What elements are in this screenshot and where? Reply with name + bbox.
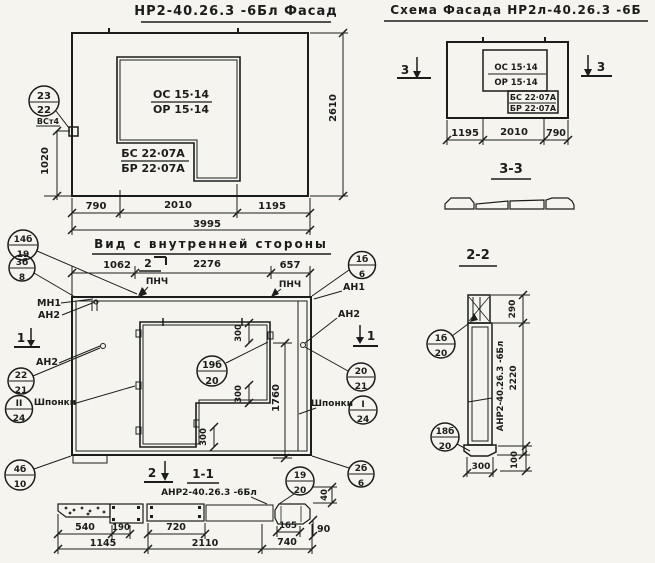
hatch-dots [65, 507, 105, 515]
svg-text:2б: 2б [355, 463, 368, 474]
section-1-marker-left: 1 [14, 328, 40, 347]
an1-label: АН1 [343, 282, 365, 293]
svg-text:20: 20 [205, 376, 219, 387]
section-1-1-panel-mark: АНР2-40.26.3 -6Бл [161, 488, 257, 498]
section-2-2: 2-2 АНР2-40.26.3 -6Бл 290 2220 300 100 1… [427, 248, 532, 477]
schema-opening-mark-top: ОС 15·14 [494, 63, 537, 73]
blueprint-sheet: НР2-40.26.3 -6Бл Фасад ОС 15·14 ОР 15·14… [0, 0, 655, 563]
dim-100: 100 [510, 451, 520, 469]
dim-1145: 1145 [90, 538, 116, 549]
svg-text:6: 6 [359, 270, 365, 280]
mn1-label: МН1 [37, 298, 61, 309]
section-2-marker-bottom: 2 [144, 461, 173, 482]
section-3-3-title: 3-3 [499, 162, 523, 177]
facade-view: НР2-40.26.3 -6Бл Фасад ОС 15·14 ОР 15·14… [29, 4, 348, 235]
facade-block-mark-top: БС 22·07А [121, 147, 185, 160]
facade-block-mark-bottom: БР 22·07А [121, 162, 185, 175]
facade-title: НР2-40.26.3 -6Бл Фасад [134, 4, 338, 19]
dim-657: 657 [280, 260, 301, 271]
schema-title: Схема Фасада НР2л-40.26.3 -6Б [390, 3, 641, 17]
an2-label-right: АН2 [338, 309, 360, 320]
dim-300-a: 300 [234, 324, 244, 342]
dim-290: 290 [508, 300, 518, 319]
section-3-marker-right: 3 [581, 55, 612, 77]
steel-grade-note: ВСт4 [37, 117, 60, 126]
svg-text:3: 3 [401, 63, 409, 77]
dim-720: 720 [166, 522, 186, 533]
facade-opening-mark-top: ОС 15·14 [153, 88, 209, 101]
section-3-3: 3-3 [445, 162, 574, 209]
section-2-2-panel-mark: АНР2-40.26.3 -6Бл [496, 341, 506, 432]
an2-label-left-mid: АН2 [36, 357, 58, 368]
dim-2010-schema: 2010 [500, 127, 528, 138]
section-2-2-title: 2-2 [466, 248, 490, 263]
dim-1020: 1020 [40, 147, 51, 175]
svg-text:14б: 14б [14, 234, 33, 245]
svg-text:3: 3 [597, 60, 605, 74]
dim-2276: 2276 [193, 259, 221, 270]
inner-view-title: Вид с внутренней стороны [94, 237, 328, 251]
dim-90: 90 [317, 524, 331, 535]
svg-text:10: 10 [14, 480, 27, 490]
svg-text:24: 24 [357, 415, 370, 425]
svg-text:II: II [16, 399, 23, 409]
svg-text:19: 19 [294, 471, 307, 481]
schema-opening-mark-bottom: ОР 15·14 [494, 78, 537, 88]
schema-block-mark-bottom: БР 22·07А [510, 104, 557, 113]
profile-end-piece [58, 504, 110, 517]
pnch-label-left: ПНЧ [146, 277, 168, 287]
dim-300-b: 300 [234, 385, 244, 403]
svg-text:20: 20 [435, 349, 448, 359]
svg-text:1: 1 [367, 329, 375, 343]
inner-view: Вид с внутренней стороны 1062 2276 657 2… [5, 230, 378, 504]
dim-1760: 1760 [271, 384, 282, 412]
balloon-23: 23 [37, 91, 51, 102]
shponki-label-right: Шпонки [311, 399, 353, 409]
svg-text:3б: 3б [16, 257, 29, 268]
svg-text:6: 6 [358, 479, 364, 489]
section-2-marker-top: 2 [139, 257, 166, 271]
schema-block-mark-top: БС 22·07А [510, 93, 557, 102]
dim-1195: 1195 [258, 201, 286, 212]
svg-text:22: 22 [15, 371, 28, 381]
dim-540: 540 [75, 522, 95, 533]
drawing-canvas: НР2-40.26.3 -6Бл Фасад ОС 15·14 ОР 15·14… [0, 0, 655, 563]
dim-165: 165 [279, 521, 297, 531]
svg-text:8: 8 [19, 273, 25, 283]
svg-text:I: I [361, 400, 364, 410]
svg-text:4б: 4б [14, 464, 27, 475]
svg-text:24: 24 [13, 414, 26, 424]
section-1-1-title: 1-1 [192, 467, 214, 481]
svg-text:1: 1 [17, 331, 25, 345]
section-3-marker-left: 3 [397, 57, 431, 79]
balloon-22: 22 [37, 105, 51, 116]
dim-300-c: 300 [199, 428, 209, 446]
dim-2220: 2220 [509, 365, 519, 390]
lifting-loop-mark [69, 127, 78, 136]
svg-text:20: 20 [355, 367, 368, 377]
facade-schema: Схема Фасада НР2л-40.26.3 -6Б ОС 15·14 О… [384, 3, 648, 145]
dim-2610: 2610 [328, 94, 339, 122]
svg-text:19б: 19б [202, 360, 222, 371]
pnch-label-right: ПНЧ [279, 280, 301, 290]
dim-2010: 2010 [164, 200, 192, 211]
dim-1062: 1062 [103, 260, 131, 271]
profile-span [206, 505, 273, 521]
section-1-marker-right: 1 [353, 325, 378, 346]
inner-panel-outline [72, 297, 311, 455]
dim-740: 740 [277, 537, 297, 548]
dim-3995: 3995 [193, 219, 221, 230]
svg-text:2: 2 [148, 466, 156, 480]
svg-text:1б: 1б [356, 254, 369, 265]
svg-text:21: 21 [15, 386, 28, 396]
dim-1195-schema: 1195 [451, 128, 479, 139]
profile-block-2 [147, 504, 204, 521]
dim-2110: 2110 [192, 538, 219, 549]
dim-790: 790 [86, 201, 107, 212]
svg-text:2: 2 [144, 257, 152, 270]
svg-text:20: 20 [439, 442, 452, 452]
facade-opening-mark-bottom: ОР 15·14 [153, 103, 209, 116]
svg-text:1б: 1б [435, 333, 448, 344]
shponki-label-left: Шпонки [34, 398, 76, 408]
svg-text:20: 20 [294, 486, 307, 496]
dim-790-schema: 790 [546, 128, 566, 139]
section-3-3-profile [445, 198, 474, 209]
an2-label-left-top: АН2 [38, 310, 60, 321]
svg-text:18б: 18б [436, 426, 455, 437]
svg-text:21: 21 [355, 382, 368, 392]
dim-300-base: 300 [472, 462, 491, 472]
